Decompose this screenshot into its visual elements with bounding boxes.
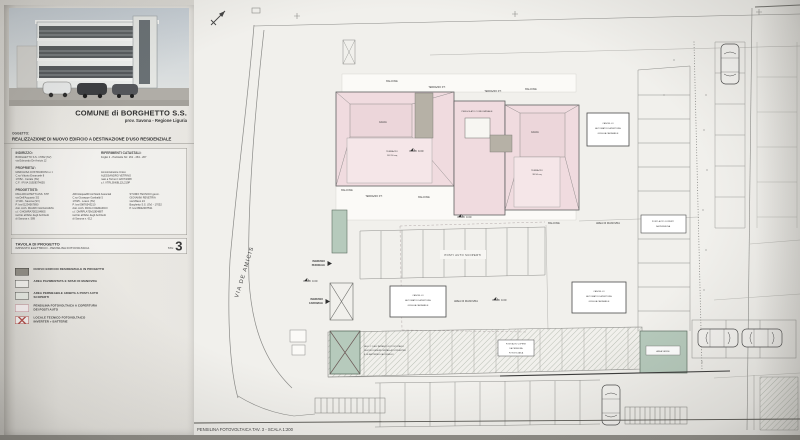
scale-note: PENSILINA FOTOVOLTAICA TAV. 3 - SCALA 1:… <box>197 427 294 432</box>
legend: NUOVO EDIFICIO RESIDENZIALE IN PROGETTO … <box>15 268 187 324</box>
falda-label: FALDA <box>379 121 387 124</box>
catasto-block: RIFERIMENTI CATASTALI: Foglio 2 - Partic… <box>101 152 183 164</box>
terrazzo-pt-label: TERRAZZO P.T. <box>365 195 383 198</box>
cancello-box-2: CANCELLO AUTOMATICO APERTURA GRIGLIA CAR… <box>572 282 626 313</box>
tavola-box: TAVOLA DI PROGETTO IMPIANTO ELETTRICO - … <box>11 238 187 254</box>
site-plan-drawing: VIA DE AMICIS <box>194 0 800 440</box>
balcone-label: BALCONE <box>548 222 560 225</box>
progettisti-col2: ARCHsquadID Architetti AssociatiC.so Giu… <box>73 193 126 221</box>
svg-text:POSTI AUTO COPERTI: POSTI AUTO COPERTI <box>652 220 675 223</box>
progettisti-col3: STUDIO TECNICO geom.GIOVANNI REVETRIAvia… <box>130 193 183 221</box>
svg-text:0.00: 0.00 <box>466 215 472 219</box>
posti-coperti-box: POSTI AUTO COPERTI DA PENSILINA <box>641 215 686 233</box>
svg-text:DA PENSILINA: DA PENSILINA <box>510 347 524 350</box>
svg-text:0.00: 0.00 <box>312 279 318 283</box>
proprieta-col2: Amministratore UnicoALESSANDRO VETRINOna… <box>101 171 183 185</box>
progettisti-block: PROGETTISTI: DNA ARCHITETTI ASS. STPvia … <box>16 189 183 222</box>
swatch-paved <box>15 280 29 288</box>
svg-text:CANCELLO: CANCELLO <box>593 290 605 293</box>
legend-label: PENSILINA FOTOVOLTAICA A COPERTURADEI PO… <box>34 304 98 312</box>
svg-text:POSTI AUTO COPERTI: POSTI AUTO COPERTI <box>506 343 527 346</box>
svg-text:GRIGLIA CARRABILE: GRIGLIA CARRABILE <box>589 300 610 303</box>
swatch-permeable <box>15 292 29 300</box>
indirizzo-label: INDIRIZZO: <box>16 152 98 156</box>
area-verde: AREA VERDE <box>640 331 687 373</box>
svg-text:AREA VERDE: AREA VERDE <box>656 350 670 353</box>
legend-item-paved: AREA PAVIMENTATA E SPAZI DI MANOVRA <box>15 280 187 288</box>
commune-title: COMUNE di BORGHETTO S.S. <box>4 109 187 118</box>
progettisti-label: PROGETTISTI: <box>16 189 183 193</box>
svg-text:GRIGLIA CARRABILE: GRIGLIA CARRABILE <box>408 304 429 307</box>
cancello-box-3: CANCELLO AUTOMATICO APERTURA GRIGLIA CAR… <box>587 113 629 146</box>
balcone-label: BALCONE <box>418 196 430 199</box>
legend-label: AREA PERMEABILE ADIBITA A POSTI AUTOSCOP… <box>34 292 99 300</box>
svg-text:0.00: 0.00 <box>501 298 507 302</box>
ingresso-carrabile-label: INGRESSO <box>310 298 323 301</box>
svg-text:DA PENSILINA: DA PENSILINA <box>656 225 671 228</box>
catasto-lines: Foglio 2 - Particelle Nrr. 261 - 263 - 2… <box>101 156 183 160</box>
swatch-pensilina <box>15 304 29 312</box>
oggetto-label: OGGETTO: <box>12 132 186 136</box>
site-plan-sheet: VIA DE AMICIS <box>194 0 800 440</box>
balcone-label: BALCONE <box>525 88 537 91</box>
proprieta-col1: MARCHISA COSTRUZIONI s.r.l.C.so Vittorio… <box>16 171 98 185</box>
tav-number: 3 <box>175 241 182 252</box>
parked-car <box>602 385 620 425</box>
falda-label: FALDA <box>531 131 539 134</box>
terrazzo-area-label: 98.50 mq <box>532 174 542 176</box>
title-block-panel: COMUNE di BORGHETTO S.S. prov. Savona - … <box>4 5 194 435</box>
area-manovra-label: AREA DI MANOVRA <box>454 299 478 303</box>
parked-car <box>698 329 738 347</box>
terrazzo-label: TERRAZZO <box>531 169 543 172</box>
locale-tecnico-note: DEVONO ESSERE INSTALLATI L'INVERTER <box>364 349 406 352</box>
svg-text:AUTOMATICO APERTURA: AUTOMATICO APERTURA <box>595 127 621 130</box>
swatch-building <box>15 268 29 276</box>
legend-item-pensilina: PENSILINA FOTOVOLTAICA A COPERTURADEI PO… <box>15 304 187 312</box>
tavola-title: TAVOLA DI PROGETTO <box>16 242 90 247</box>
terrazzo-label: TERRAZZO <box>386 150 398 153</box>
legend-item-locale-tecnico: LOCALE TECNICO FOTOVOLTAICOINVERTER + BA… <box>15 317 187 325</box>
locale-tecnico-note: NEL L.T. DELL'IMPIANTO FOTOVOLTAICO <box>364 345 404 348</box>
terrazzo-area-label: 102.50 mq <box>387 155 398 157</box>
drawing-photo: COMUNE di BORGHETTO S.S. prov. Savona - … <box>0 0 800 440</box>
province-subtitle: prov. Savona - Regione Liguria <box>4 118 187 123</box>
building-render-photo <box>9 8 189 106</box>
svg-text:AUTOMATICO APERTURA: AUTOMATICO APERTURA <box>586 295 612 298</box>
progettisti-col1: DNA ARCHITETTI ASS. STPvia Dell'Acquario… <box>16 193 69 221</box>
project-info-box: INDIRIZZO: BORGHETTO S.S. 17052 (SV)via … <box>11 148 187 235</box>
legend-label: AREA PAVIMENTATA E SPAZI DI MANOVRA <box>34 280 98 284</box>
balcone-label: BALCONE <box>386 80 398 83</box>
catasto-label: RIFERIMENTI CATASTALI: <box>101 152 183 156</box>
proprieta-label: PROPRIETA': <box>16 167 183 171</box>
locale-tecnico-fotovoltaico <box>330 331 360 374</box>
commune-header: COMUNE di BORGHETTO S.S. prov. Savona - … <box>4 109 194 123</box>
proprieta-block: PROPRIETA': MARCHISA COSTRUZIONI s.r.l.C… <box>16 167 183 186</box>
oggetto-section: OGGETTO: REALIZZAZIONE DI NUOVO EDIFICIO… <box>4 131 194 144</box>
legend-item-permeable: AREA PERMEABILE ADIBITA A POSTI AUTOSCOP… <box>15 292 187 300</box>
svg-text:FOTOVOLTAICA: FOTOVOLTAICA <box>509 352 524 355</box>
cancello-box-1: CANCELLO AUTOMATICO APERTURA GRIGLIA CAR… <box>390 286 446 317</box>
parked-car <box>721 44 739 84</box>
legend-label: NUOVO EDIFICIO RESIDENZIALE IN PROGETTO <box>34 268 105 272</box>
legend-item-building: NUOVO EDIFICIO RESIDENZIALE IN PROGETTO <box>15 268 187 276</box>
terrazzo-pt-label: TERRAZZO P.T. <box>484 90 502 93</box>
legend-label: LOCALE TECNICO FOTOVOLTAICOINVERTER + BA… <box>34 317 86 325</box>
svg-text:GRIGLIA CARRABILE: GRIGLIA CARRABILE <box>598 132 619 135</box>
tav-label: TAV. <box>168 247 174 250</box>
tavola-subtitle: IMPIANTO ELETTRICO - PENSILINA FOTOVOLTA… <box>16 247 90 250</box>
locale-tecnico-note: E LE BATTERIE DI ACCUMULO <box>364 353 394 356</box>
balcone-label: BALCONE <box>341 189 353 192</box>
oggetto-text: REALIZZAZIONE DI NUOVO EDIFICIO A DESTIN… <box>12 137 186 142</box>
area-manovra-label: AREA DI MANOVRA <box>596 221 620 225</box>
parked-car <box>742 329 782 347</box>
pensilina-band-label-box: POSTI AUTO COPERTI DA PENSILINA FOTOVOLT… <box>498 340 534 356</box>
indirizzo-block: INDIRIZZO: BORGHETTO S.S. 17052 (SV)via … <box>16 152 98 164</box>
svg-text:CANCELLO: CANCELLO <box>602 122 614 125</box>
green-strip <box>332 210 347 253</box>
pergolato-label: PERGOLATO CONDOMINIALE <box>462 110 493 113</box>
ingresso-carrabile-label: CARRABILE <box>309 302 323 305</box>
swatch-locale-tecnico <box>15 317 29 325</box>
posti-auto-scoperti-label: POSTI AUTO SCOPERTI <box>444 253 481 257</box>
ingresso-pedonale-label: INGRESSO <box>312 260 325 263</box>
photo-bottom-edge <box>0 435 800 440</box>
terrazzo-pt-label: TERRAZZO P.T. <box>428 86 446 89</box>
ingresso-pedonale-label: PEDONALE <box>312 264 326 267</box>
indirizzo-lines: BORGHETTO S.S. 17052 (SV)via Edmondo De … <box>16 156 98 163</box>
svg-text:AUTOMATICO APERTURA: AUTOMATICO APERTURA <box>405 299 431 302</box>
svg-text:CANCELLO: CANCELLO <box>412 294 424 297</box>
svg-text:9.00: 9.00 <box>418 149 424 153</box>
building-render-graphic <box>9 8 189 106</box>
pensilina-fotovoltaica-band: NEL L.T. DELL'IMPIANTO FOTOVOLTAICO DEVO… <box>328 327 642 377</box>
